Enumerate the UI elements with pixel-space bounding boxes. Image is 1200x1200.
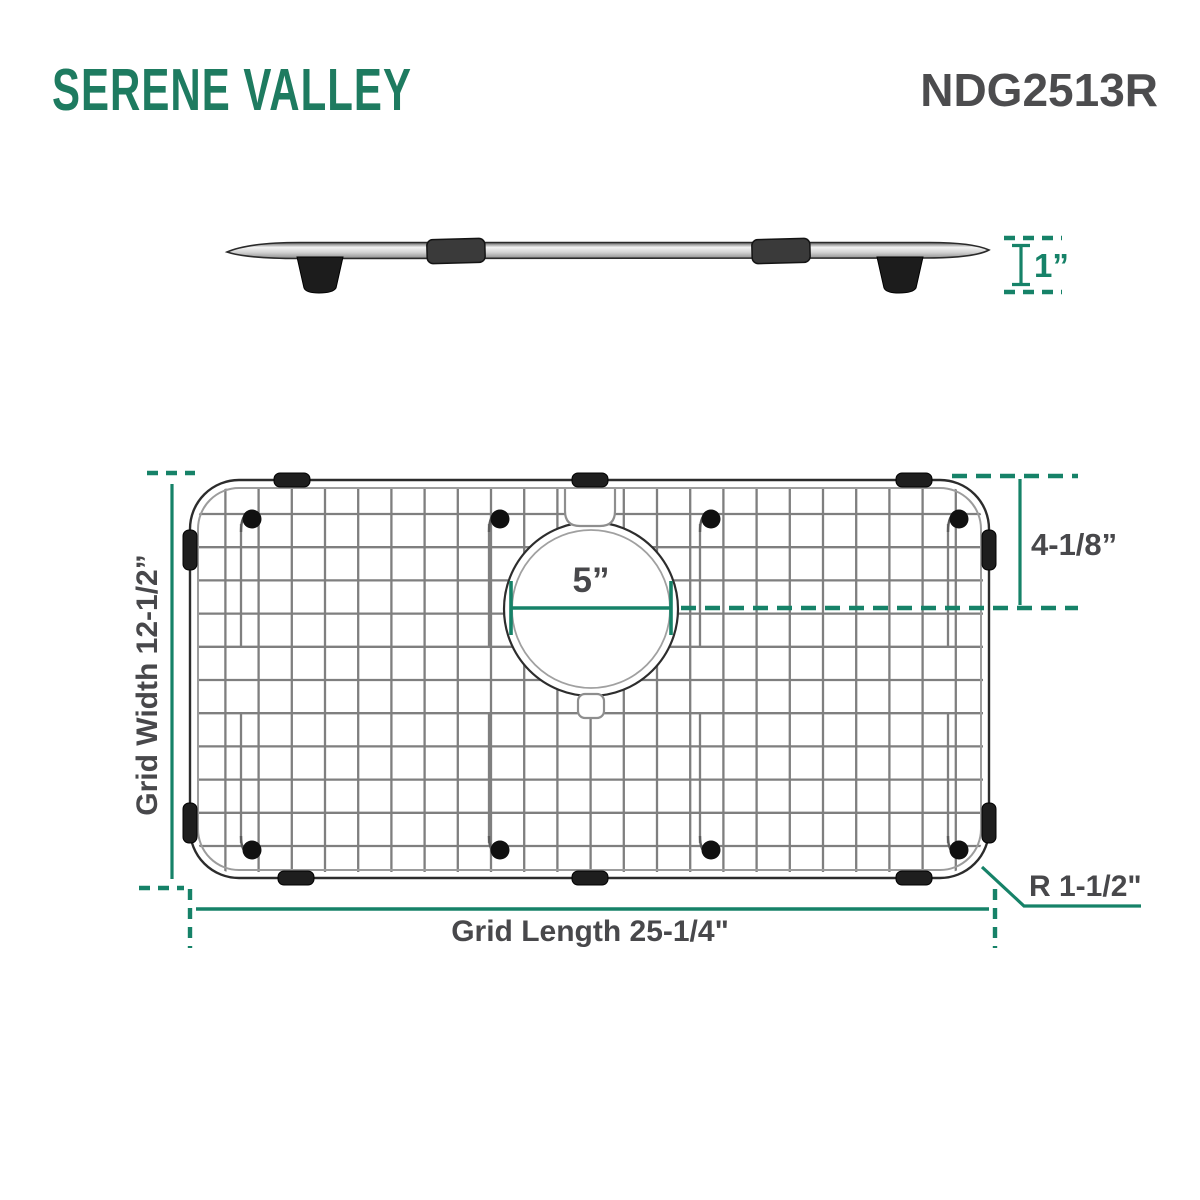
grid-side-view — [227, 238, 989, 293]
corner-radius-label: R 1-1/2" — [1029, 870, 1142, 904]
rubber-foot-side — [877, 257, 923, 293]
rubber-clip-side — [752, 238, 811, 264]
rubber-clip-side — [427, 238, 486, 264]
grid-top-view — [183, 473, 996, 885]
rubber-foot-side — [297, 257, 343, 293]
product-dimension-diagram: SERENE VALLEY NDG2513R 1” 5” 4-1/8” Grid… — [0, 0, 1200, 1200]
hole-diameter-label: 5” — [551, 561, 631, 601]
thickness-dimension-label: 1” — [1034, 247, 1069, 285]
wire-notch — [565, 487, 615, 526]
grid-width-label: Grid Width 12-1/2” — [131, 485, 169, 885]
hole-offset-label: 4-1/8” — [1031, 527, 1117, 563]
wire-notch — [578, 694, 604, 718]
grid-length-label: Grid Length 25-1/4" — [390, 915, 790, 949]
brand-logo: SERENE VALLEY — [52, 56, 412, 124]
model-number: NDG2513R — [850, 63, 1158, 117]
